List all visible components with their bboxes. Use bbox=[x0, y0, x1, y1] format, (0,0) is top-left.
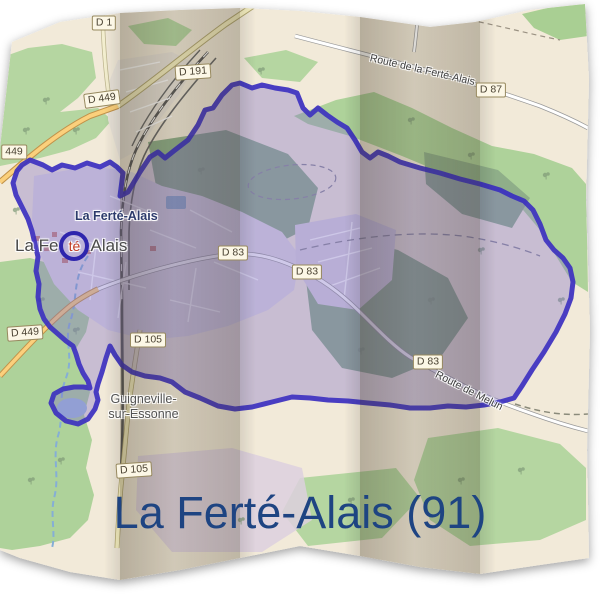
village-label: Guigneville- sur-Essonne bbox=[96, 392, 191, 422]
page-title: La Ferté-Alais (91) bbox=[0, 487, 600, 539]
road-ref-label: D 191 bbox=[175, 63, 212, 80]
commune-name-overlay: La Fe té Alais bbox=[15, 231, 127, 261]
road-ref-label: 449 bbox=[1, 145, 27, 160]
commune-name-post: Alais bbox=[90, 236, 127, 256]
village-label-line2: sur-Essonne bbox=[96, 407, 191, 422]
road-ref-label: D 105 bbox=[130, 333, 166, 348]
road-ref-label: D 87 bbox=[476, 83, 506, 98]
road-ref-label: D 83 bbox=[218, 246, 248, 261]
road-ref-label: D 83 bbox=[292, 265, 322, 280]
road-ref-label: D 449 bbox=[7, 324, 44, 341]
road-ref-label: D 83 bbox=[413, 355, 443, 370]
road-ref-label: D 1 bbox=[92, 16, 116, 31]
town-label: La Ferté-Alais bbox=[75, 209, 158, 223]
folded-map-page: D 1 D 191 D 449 449 D 87 D 83 D 83 D 83 … bbox=[0, 0, 600, 600]
town-circle-marker: té bbox=[59, 231, 89, 261]
commune-name-highlight: té bbox=[69, 239, 81, 253]
commune-name-pre: La Fe bbox=[15, 236, 58, 256]
village-label-line1: Guigneville- bbox=[96, 392, 191, 407]
road-ref-label: D 105 bbox=[116, 461, 153, 478]
